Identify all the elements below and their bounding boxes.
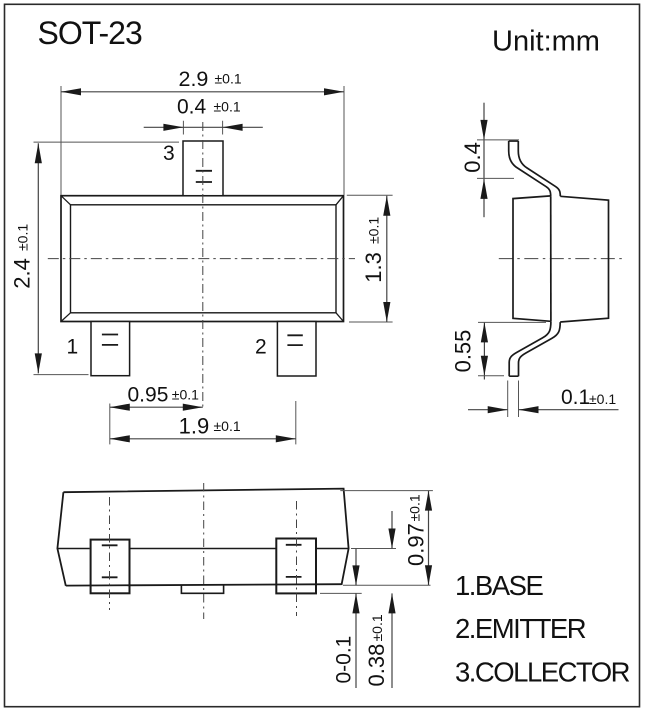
- svg-text:1.9: 1.9: [179, 413, 210, 438]
- svg-text:1: 1: [67, 336, 79, 359]
- svg-text:Unit:mm: Unit:mm: [492, 26, 600, 58]
- svg-text:2.4: 2.4: [10, 258, 35, 289]
- svg-text:3: 3: [163, 142, 175, 165]
- svg-text:±0.1: ±0.1: [369, 614, 385, 641]
- svg-text:±0.1: ±0.1: [215, 71, 242, 87]
- svg-text:±0.1: ±0.1: [214, 418, 241, 434]
- svg-text:2: 2: [255, 336, 267, 359]
- svg-text:±0.1: ±0.1: [407, 494, 423, 521]
- svg-text:0.4: 0.4: [460, 142, 485, 173]
- svg-text:±0.1: ±0.1: [172, 387, 199, 403]
- svg-text:1.3: 1.3: [361, 252, 386, 283]
- svg-text:1.BASE: 1.BASE: [455, 570, 543, 601]
- svg-text:2.EMITTER: 2.EMITTER: [455, 613, 586, 644]
- svg-text:±0.1: ±0.1: [214, 98, 241, 114]
- svg-text:SOT-23: SOT-23: [38, 15, 142, 51]
- svg-text:0.55: 0.55: [451, 330, 476, 373]
- svg-text:±0.1: ±0.1: [589, 391, 616, 407]
- svg-text:0.38: 0.38: [364, 644, 389, 687]
- svg-text:0.4: 0.4: [177, 95, 207, 118]
- svg-text:0.97: 0.97: [404, 523, 429, 566]
- svg-text:0.1: 0.1: [561, 386, 590, 409]
- svg-text:3.COLLECTOR: 3.COLLECTOR: [455, 657, 630, 688]
- svg-text:±0.1: ±0.1: [366, 217, 382, 244]
- svg-text:2.9: 2.9: [179, 67, 209, 91]
- svg-text:±0.1: ±0.1: [15, 224, 31, 251]
- svg-text:0.95: 0.95: [128, 384, 169, 407]
- svg-text:0-0.1: 0-0.1: [333, 636, 356, 684]
